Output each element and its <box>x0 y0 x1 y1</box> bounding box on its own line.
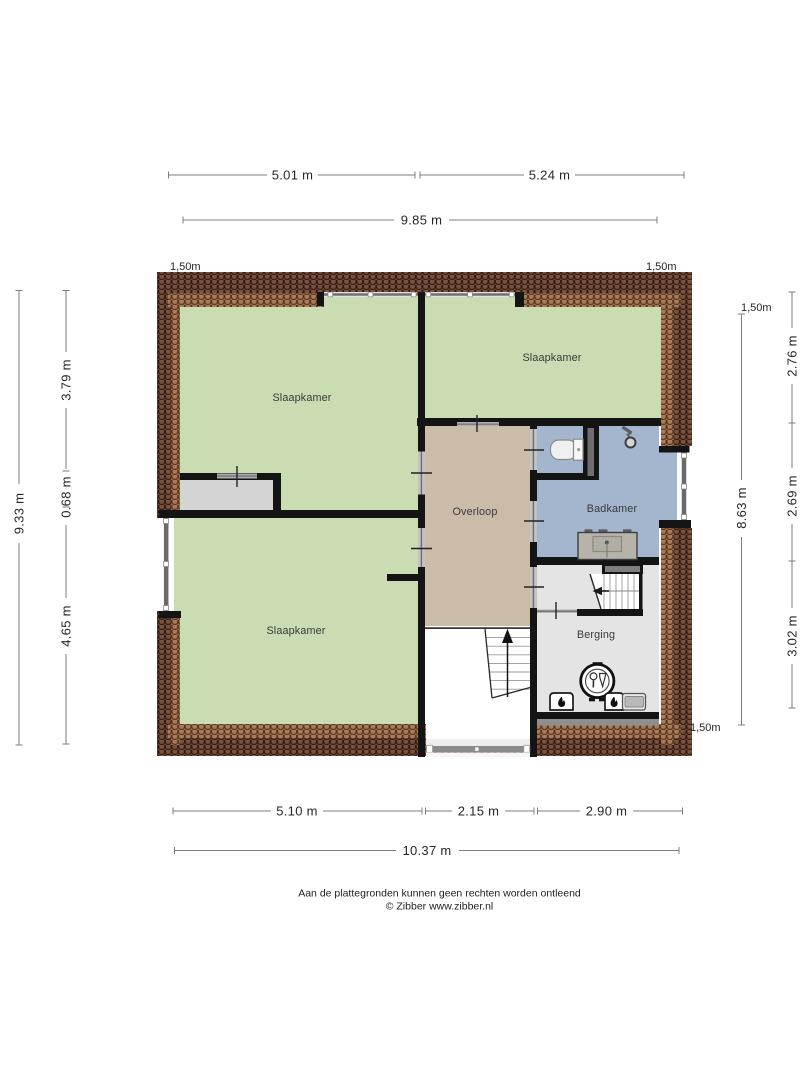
svg-text:Berging: Berging <box>577 629 615 641</box>
svg-text:2.76 m: 2.76 m <box>785 335 800 377</box>
svg-text:9.33 m: 9.33 m <box>12 493 27 535</box>
svg-text:Slaapkamer: Slaapkamer <box>272 392 331 404</box>
svg-text:2.15 m: 2.15 m <box>458 804 500 819</box>
svg-text:3.02 m: 3.02 m <box>785 615 800 657</box>
svg-text:4.65 m: 4.65 m <box>59 605 74 647</box>
svg-text:1,50m: 1,50m <box>170 261 201 273</box>
svg-text:2.90 m: 2.90 m <box>586 804 628 819</box>
svg-text:0.68 m: 0.68 m <box>59 476 74 518</box>
svg-text:Badkamer: Badkamer <box>587 503 638 515</box>
svg-text:Aan de plattegronden kunnen ge: Aan de plattegronden kunnen geen rechten… <box>298 888 581 900</box>
svg-text:1,50m: 1,50m <box>690 722 721 734</box>
svg-text:10.37 m: 10.37 m <box>402 843 451 858</box>
svg-text:3.79 m: 3.79 m <box>59 359 74 401</box>
svg-text:1,50m: 1,50m <box>741 302 772 314</box>
svg-text:9.85 m: 9.85 m <box>401 213 443 228</box>
svg-text:Slaapkamer: Slaapkamer <box>522 352 581 364</box>
svg-text:© Zibber www.zibber.nl: © Zibber www.zibber.nl <box>386 901 494 913</box>
svg-text:5.24 m: 5.24 m <box>529 168 571 183</box>
svg-text:Slaapkamer: Slaapkamer <box>266 625 325 637</box>
svg-text:Overloop: Overloop <box>452 506 497 518</box>
svg-text:5.01 m: 5.01 m <box>272 168 314 183</box>
svg-text:8.63 m: 8.63 m <box>734 487 749 529</box>
svg-text:2.69 m: 2.69 m <box>785 475 800 517</box>
svg-text:5.10 m: 5.10 m <box>276 804 318 819</box>
svg-text:1,50m: 1,50m <box>646 261 677 273</box>
